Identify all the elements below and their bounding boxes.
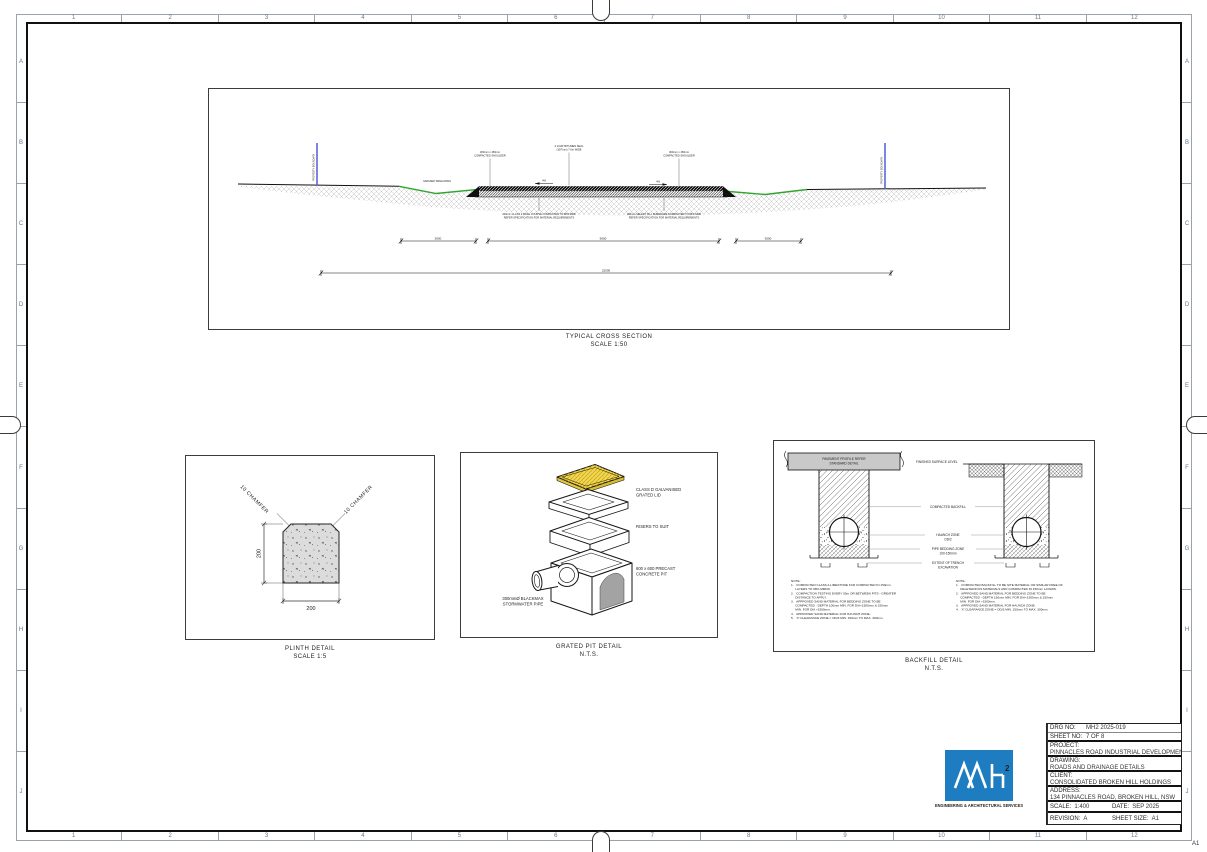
crossfall-arrow-left: 4% bbox=[535, 178, 553, 184]
callout-text: 300mm x 150mm bbox=[669, 150, 689, 154]
drawing-sheet: 123456789101112 123456789101112 ABCDEFGH… bbox=[0, 0, 1207, 852]
grid-row-label: G bbox=[1182, 509, 1192, 590]
grid-col-label: 2 bbox=[122, 14, 218, 22]
pipe-label: STORMWATER PIPE bbox=[503, 602, 544, 607]
backfill-drawing: PAVEMENT PROFILE REFER STANDARD DETAIL F… bbox=[774, 441, 1094, 651]
field-label: PROJECT: bbox=[1050, 743, 1182, 750]
grid-col-label: 7 bbox=[605, 832, 701, 841]
zone-labels: COMPACTED BACKFILL HAUNCH ZONE OD/2 PIPE… bbox=[867, 505, 1004, 570]
crossfall-arrow-right: 4% bbox=[649, 179, 667, 185]
grid-col-label: 2 bbox=[122, 832, 218, 841]
grid-row-label: B bbox=[1182, 103, 1192, 184]
grid-col-label: 3 bbox=[219, 14, 315, 22]
scale-field: SCALE: 1:400 bbox=[1050, 804, 1112, 810]
grid-row-label: E bbox=[16, 346, 26, 427]
field-label: ADDRESS: bbox=[1050, 788, 1182, 795]
shoulder-callout-left: 300mm x 150mm COMPACTED SHOULDER bbox=[474, 150, 506, 186]
field-label: CLIENT: bbox=[1050, 773, 1182, 780]
field-label: REVISION: bbox=[1050, 816, 1080, 822]
pipe-label: 300mmØ BLACKMAX bbox=[502, 596, 543, 601]
plinth-panel: 200 200 10 CHAMFER 10 CHAMFER bbox=[185, 455, 435, 640]
table-drain-label: GRASSED TABLE DRAIN bbox=[423, 180, 451, 183]
field-label: SCALE: bbox=[1050, 804, 1071, 810]
drg-no-value: MH2 2025-019 bbox=[1086, 725, 1126, 731]
grid-row-label: H bbox=[1182, 590, 1192, 671]
grid-col-label: 10 bbox=[894, 14, 990, 22]
callout-text: (10/7mm) 7.0m WIDE bbox=[556, 148, 581, 152]
grid-row-label: D bbox=[16, 265, 26, 346]
grid-col-label: 8 bbox=[701, 832, 797, 841]
callout-text: 2 COAT BITUMEN SEAL bbox=[555, 144, 584, 148]
grid-row-label: F bbox=[1182, 427, 1192, 508]
pavement-label: PAVEMENT PROFILE REFER bbox=[822, 457, 866, 461]
pavement-label: STANDARD DETAIL bbox=[829, 462, 858, 466]
chamfer-label-right: 10 CHAMFER bbox=[343, 484, 374, 515]
zone-label: OD/2 bbox=[944, 538, 952, 542]
field-label: DRG NO: bbox=[1050, 725, 1086, 731]
trench-under-pavement: PAVEMENT PROFILE REFER STANDARD DETAIL bbox=[785, 451, 904, 567]
grid-col-label: 5 bbox=[412, 14, 508, 22]
grid-col-label: 4 bbox=[315, 14, 411, 22]
design-issue-strip: DESIGN ISSUE bbox=[1047, 724, 1048, 824]
crossfall-label: 4% bbox=[656, 179, 660, 183]
grid-row-label: F bbox=[16, 427, 26, 508]
clearance-brackets bbox=[821, 563, 867, 567]
grid-row-label: C bbox=[1182, 184, 1192, 265]
date-value: SEP 2025 bbox=[1132, 804, 1159, 810]
grid-col-label: 1 bbox=[26, 832, 122, 841]
registration-notch-right bbox=[1186, 416, 1207, 434]
lid-label: CLASS D GALVANISED bbox=[636, 487, 681, 492]
revision-value: A bbox=[1083, 816, 1087, 822]
grated-pit-panel: CLASS D GALVANISED GRATED LID RISERS TO … bbox=[460, 452, 718, 638]
grid-col-label: 11 bbox=[990, 14, 1086, 22]
revision-row: REVISION: A SHEET SIZE: A1 bbox=[1048, 813, 1182, 824]
field-label: SHEET SIZE: bbox=[1112, 816, 1149, 822]
detail-title-text: TYPICAL CROSS SECTION bbox=[208, 333, 1010, 341]
grid-col-label: 3 bbox=[219, 832, 315, 841]
chamfer-leader-right bbox=[333, 514, 345, 526]
detail-scale-text: SCALE 1:50 bbox=[208, 341, 1010, 349]
zone-label: COMPACTED BACKFILL bbox=[930, 505, 966, 509]
plinth-title: PLINTH DETAIL SCALE 1:5 bbox=[185, 645, 435, 661]
natural-surface-line bbox=[238, 184, 399, 186]
surface-label: FINISHED SURFACE LEVEL bbox=[916, 460, 958, 464]
sheet-no-value: 7 OF 8 bbox=[1086, 734, 1104, 740]
plinth-concrete-texture bbox=[283, 524, 339, 583]
project-row: PROJECT: PINNACLES ROAD INDUSTRIAL DEVEL… bbox=[1048, 742, 1182, 757]
property-boundary-left: PROPERTY BOUNDARY bbox=[313, 143, 318, 186]
grid-row-label: A bbox=[16, 22, 26, 103]
grated-pit-title: GRATED PIT DETAIL N.T.S. bbox=[460, 643, 718, 659]
dimension-value: 9000 bbox=[600, 236, 607, 240]
chamfer-label-left: 10 CHAMFER bbox=[239, 484, 270, 515]
pit-label: 600 x 600 PRECAST bbox=[636, 566, 676, 571]
grid-row-label: I bbox=[16, 671, 26, 752]
seal-callout: 2 COAT BITUMEN SEAL (10/7mm) 7.0m WIDE bbox=[555, 144, 584, 186]
detail-scale-text: N.T.S. bbox=[773, 665, 1095, 673]
cross-section-drawing: PROPERTY BOUNDARY PROPERTY BOUNDARY 300m… bbox=[209, 89, 1009, 329]
detail-title-text: GRATED PIT DETAIL bbox=[460, 643, 718, 651]
drawing-row: DRAWING: ROADS AND DRAINAGE DETAILS bbox=[1048, 757, 1182, 772]
callout-text: 200mm CLASS 2 BASE COURSE COMPACTED TO 9… bbox=[502, 212, 575, 216]
grid-col-label: 12 bbox=[1087, 14, 1182, 22]
grid-row-label: A bbox=[1182, 22, 1192, 103]
field-label: SHEET NO: bbox=[1050, 734, 1086, 740]
grated-lid bbox=[557, 465, 624, 493]
detail-title-text: PLINTH DETAIL bbox=[185, 645, 435, 653]
dimension-value: 200 bbox=[306, 606, 315, 612]
dimension-value: 22000 bbox=[602, 268, 611, 272]
zone-label: EXTENT OF TRENCH bbox=[932, 561, 965, 565]
dimension-value: 200 bbox=[257, 549, 263, 558]
zone-label: HAUNCH ZONE bbox=[936, 533, 959, 537]
client-value: CONSOLIDATED BROKEN HILL HOLDINGS bbox=[1050, 780, 1182, 787]
boundary-label: PROPERTY BOUNDARY bbox=[881, 156, 884, 184]
grid-row-label: G bbox=[16, 509, 26, 590]
sheet-size-field: SHEET SIZE: A1 bbox=[1112, 816, 1159, 822]
crossfall-label: 4% bbox=[542, 178, 546, 182]
zone-label: EXCAVATION bbox=[938, 566, 959, 570]
callout-text: COMPACTED SHOULDER bbox=[663, 154, 695, 158]
lid-label: GRATED LID bbox=[636, 493, 661, 498]
chamfer-leader-left bbox=[277, 514, 289, 526]
address-row: ADDRESS: 134 PINNACLES ROAD, BROKEN HILL… bbox=[1048, 787, 1182, 802]
field-label: DRAWING: bbox=[1050, 758, 1182, 765]
grid-row-label: J bbox=[1182, 752, 1192, 832]
grid-row-label: B bbox=[16, 103, 26, 184]
title-block-rows: DRG NO: MH2 2025-019 SHEET NO: 7 OF 8 PR… bbox=[1048, 724, 1182, 824]
note-line: 4. 'X' CLEARANCE ZONE = OD/3 MIN. 150mm … bbox=[956, 608, 1048, 612]
plinth-dim-width bbox=[281, 583, 341, 604]
grid-row-label: D bbox=[1182, 265, 1192, 346]
dimension-value: 3000 bbox=[435, 236, 442, 240]
date-field: DATE: SEP 2025 bbox=[1112, 804, 1159, 810]
cross-section-title: TYPICAL CROSS SECTION SCALE 1:50 bbox=[208, 333, 1010, 349]
field-label: DATE: bbox=[1112, 804, 1129, 810]
surface-hatch bbox=[969, 464, 1004, 477]
sheet-size-corner-label: A1 bbox=[1192, 841, 1199, 847]
boundary-label: PROPERTY BOUNDARY bbox=[313, 153, 316, 181]
plinth-dim-height bbox=[261, 522, 283, 585]
backfill-notes-right: NOTE:1. COMPACTED BACKFILL TO BE SITE MA… bbox=[956, 579, 1063, 612]
dimension-value: 3000 bbox=[765, 236, 772, 240]
detail-scale-text: SCALE 1:5 bbox=[185, 653, 435, 661]
pit-label: CONCRETE PIT bbox=[636, 572, 668, 577]
grid-col-label: 7 bbox=[605, 14, 701, 22]
grid-col-label: 1 bbox=[26, 14, 122, 22]
callout-text: 300mm x 150mm bbox=[480, 150, 500, 154]
address-value: 134 PINNACLES ROAD, BROKEN HILL, NSW bbox=[1050, 795, 1182, 802]
surface-hatch bbox=[1049, 464, 1082, 477]
title-block: DESIGN ISSUE DRG NO: MH2 2025-019 SHEET … bbox=[1046, 723, 1182, 825]
registration-notch-left bbox=[0, 416, 21, 434]
drawing-value: ROADS AND DRAINAGE DETAILS bbox=[1050, 765, 1182, 772]
sheet-no-row: SHEET NO: 7 OF 8 bbox=[1048, 733, 1182, 742]
grid-row-label: J bbox=[16, 752, 26, 832]
sheet-size-value: A1 bbox=[1152, 816, 1159, 822]
backfill-notes-left: NOTE:1. COMPACTED CLASS A LIMESTONE FCR … bbox=[791, 579, 897, 620]
callout-text: REFER SPECIFICATION FOR MATERIAL REQUIRE… bbox=[504, 216, 575, 220]
lid-frame bbox=[549, 490, 628, 522]
zone-label: 100-150mm bbox=[939, 552, 956, 556]
grid-col-label: 6 bbox=[508, 832, 604, 841]
grid-row-label: E bbox=[1182, 346, 1192, 427]
callout-text: REFER SPECIFICATION FOR MATERIAL REQUIRE… bbox=[629, 216, 700, 220]
property-boundary-right: PROPERTY BOUNDARY bbox=[881, 143, 886, 189]
grid-col-label: 9 bbox=[797, 14, 893, 22]
grid-col-label: 9 bbox=[797, 832, 893, 841]
riser-label: RISERS TO SUIT bbox=[636, 524, 670, 529]
callout-text: COMPACTED SHOULDER bbox=[474, 154, 506, 158]
clearance-brackets bbox=[1006, 563, 1049, 567]
grid-col-label: 6 bbox=[508, 14, 604, 22]
grid-row-label: H bbox=[16, 590, 26, 671]
client-row: CLIENT: CONSOLIDATED BROKEN HILL HOLDING… bbox=[1048, 772, 1182, 787]
grid-row-label: C bbox=[16, 184, 26, 265]
grid-col-label: 4 bbox=[315, 832, 411, 841]
registration-notch-bottom bbox=[592, 831, 610, 852]
shoulder-callout-right: 300mm x 150mm COMPACTED SHOULDER bbox=[663, 150, 695, 186]
grid-col-label: 11 bbox=[990, 832, 1086, 841]
grid-col-label: 10 bbox=[894, 832, 990, 841]
note-line: 5. 'X' CLEARANCE ZONE = OD/3 MIN. 150mm … bbox=[791, 616, 883, 620]
company-logo: 2 ENGINEERING & ARCHITECTURAL SERVICES bbox=[933, 748, 1025, 810]
revision-field: REVISION: A bbox=[1050, 816, 1112, 822]
backfill-panel: PAVEMENT PROFILE REFER STANDARD DETAIL F… bbox=[773, 440, 1095, 652]
cross-section-panel: PROPERTY BOUNDARY PROPERTY BOUNDARY 300m… bbox=[208, 88, 1010, 330]
grated-pit-drawing: CLASS D GALVANISED GRATED LID RISERS TO … bbox=[461, 453, 717, 637]
detail-scale-text: N.T.S. bbox=[460, 651, 718, 659]
zone-label: PIPE BEDDING ZONE bbox=[932, 547, 964, 551]
scale-date-row: SCALE: 1:400 DATE: SEP 2025 bbox=[1048, 802, 1182, 813]
callout-text: 300mm SELECT FILL SUBGRADE COMPACTED TO … bbox=[627, 212, 701, 216]
detail-title-text: BACKFILL DETAIL bbox=[773, 657, 1095, 665]
logo-caption: ENGINEERING & ARCHITECTURAL SERVICES bbox=[935, 803, 1023, 808]
grid-col-label: 5 bbox=[412, 832, 508, 841]
pavement bbox=[466, 186, 736, 197]
drg-no-row: DRG NO: MH2 2025-019 bbox=[1048, 724, 1182, 733]
grid-col-label: 8 bbox=[701, 14, 797, 22]
logo-superscript: 2 bbox=[1005, 764, 1010, 773]
project-value: PINNACLES ROAD INDUSTRIAL DEVELOPMENT bbox=[1050, 750, 1182, 757]
grid-col-label: 12 bbox=[1087, 832, 1182, 841]
plinth-drawing: 200 200 10 CHAMFER 10 CHAMFER bbox=[186, 456, 434, 639]
scale-value: 1:400 bbox=[1074, 804, 1089, 810]
grid-row-label: I bbox=[1182, 671, 1192, 752]
registration-notch-top bbox=[592, 0, 610, 21]
backfill-title: BACKFILL DETAIL N.T.S. bbox=[773, 657, 1095, 673]
